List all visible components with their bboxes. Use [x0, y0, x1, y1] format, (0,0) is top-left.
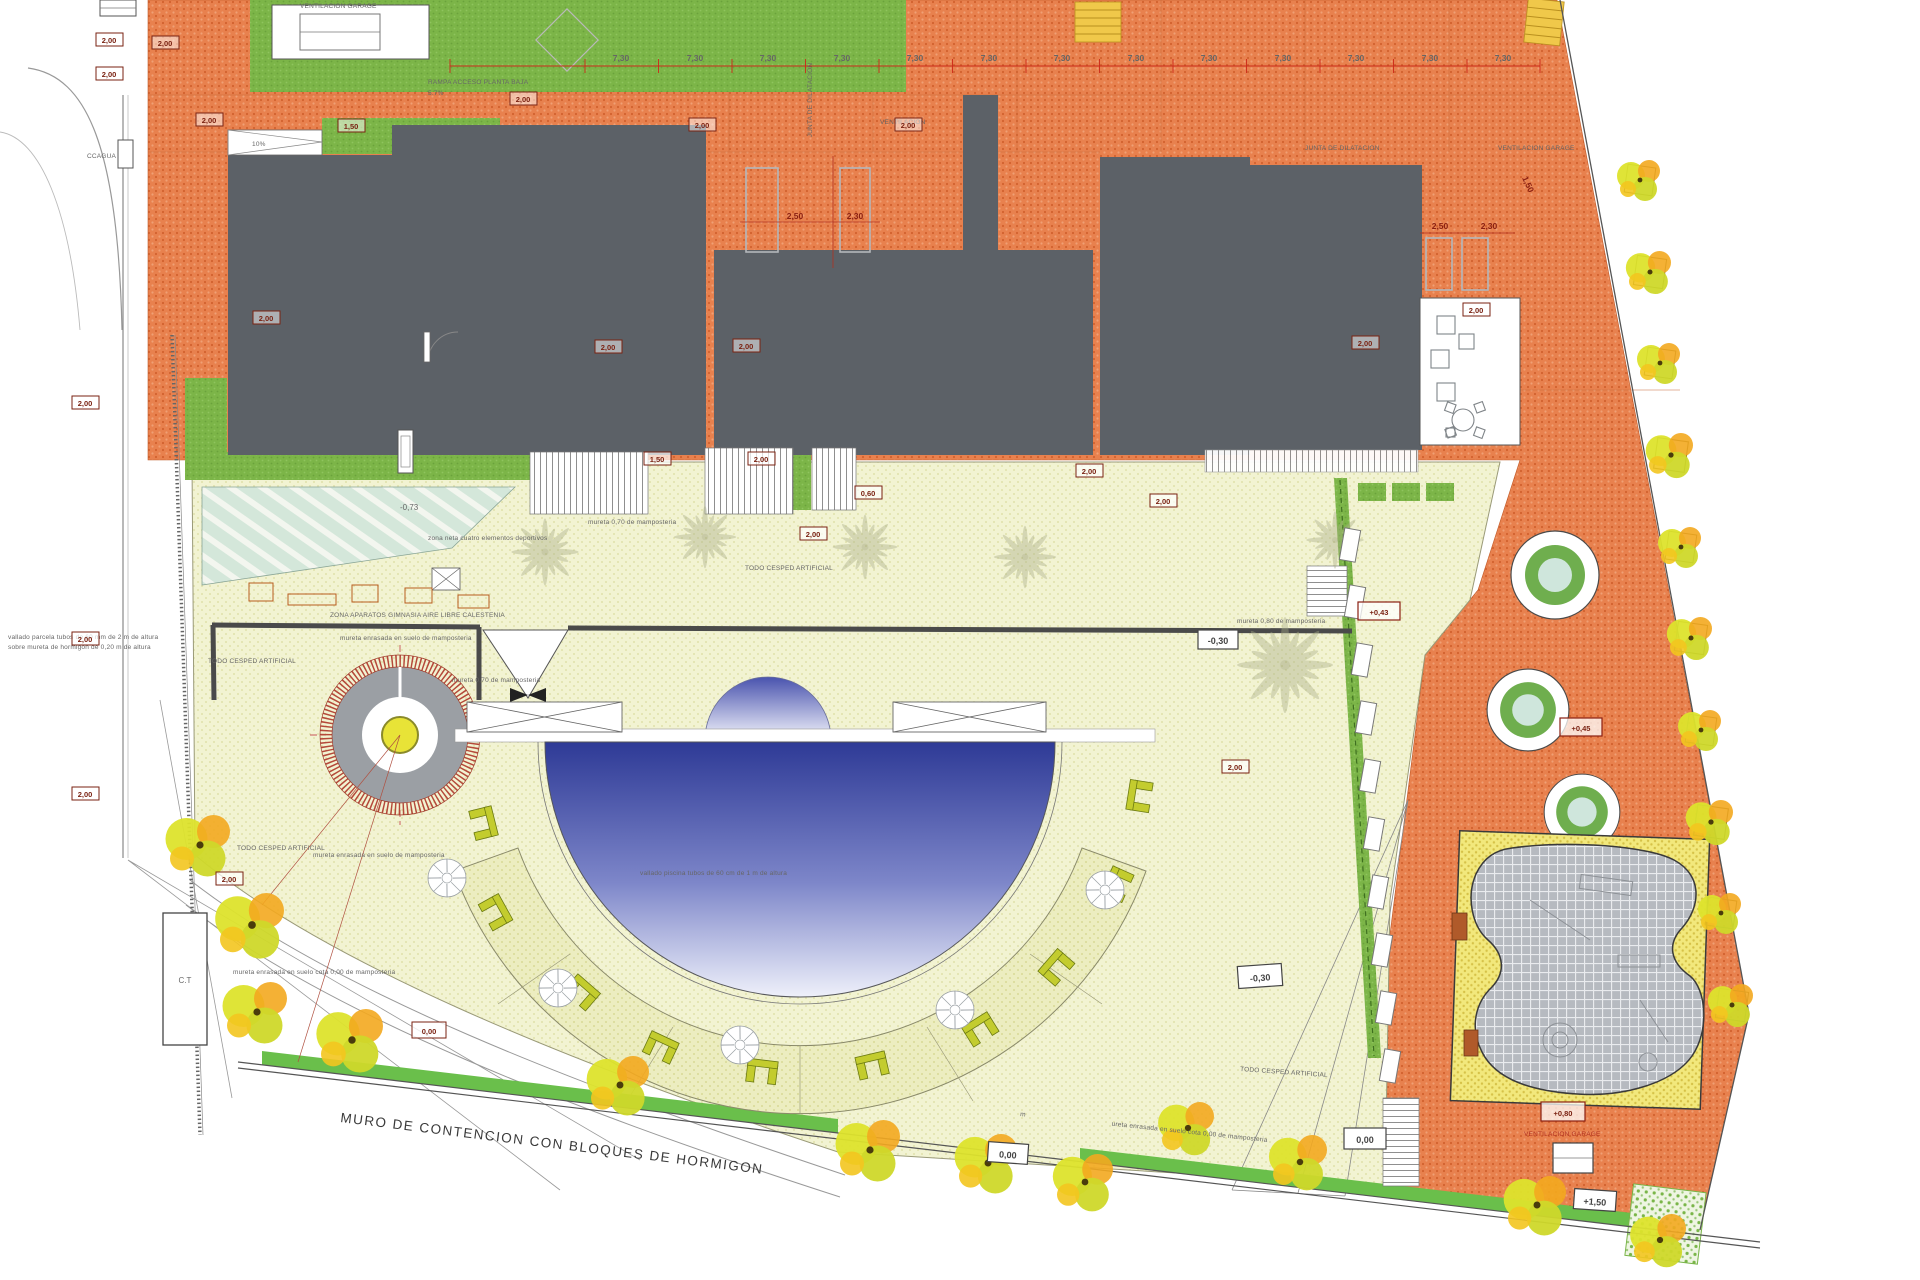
dim-730: 7,30: [687, 53, 704, 63]
zona-aparatos: ZONA APARATOS GIMNASIA AIRE LIBRE CALEST…: [330, 612, 505, 619]
level-zero-b: 0,00: [987, 1142, 1028, 1165]
dim-730: 7,30: [1201, 53, 1218, 63]
slope-10-label: 10%: [252, 141, 266, 148]
svg-text:0,00: 0,00: [422, 1027, 437, 1036]
svg-text:1,50: 1,50: [344, 122, 359, 131]
svg-text:2,00: 2,00: [754, 455, 769, 464]
vent-garage-top: VENTILACION GARAGE: [300, 3, 377, 10]
zona-neta: zona neta cuatro elementos deportivos: [428, 535, 548, 542]
svg-text:2,00: 2,00: [78, 790, 93, 799]
rampa-label: RAMPA ACCESO PLANTA BAJA: [428, 79, 529, 86]
mureta-cota-1: mureta enrasada en suelo cota 0,00 de ma…: [233, 969, 395, 976]
mureta-080: mureta 0,80 de mamposteria: [1237, 618, 1325, 625]
dim-730: 7,30: [613, 53, 630, 63]
building-2: [714, 250, 1093, 455]
svg-text:+0,43: +0,43: [1370, 608, 1389, 617]
mureta-enrasada-b: mureta enrasada en suelo de mamposteria: [313, 852, 445, 859]
svg-text:2,00: 2,00: [78, 399, 93, 408]
patio: [1420, 298, 1520, 445]
dim-730: 7,30: [907, 53, 924, 63]
level-zero-c: 0,00: [412, 1022, 446, 1038]
svg-text:2,00: 2,00: [695, 121, 710, 130]
dim-730: 7,30: [1275, 53, 1292, 63]
dim-250: 2,50: [787, 211, 804, 221]
svg-text:2,00: 2,00: [259, 314, 274, 323]
level-m073: -0,73: [400, 503, 419, 512]
svg-text:+1,50: +1,50: [1583, 1196, 1606, 1208]
building-3a: [1100, 157, 1250, 455]
todo-cesped-3: TODO CESPED ARTIFICIAL: [237, 845, 325, 852]
svg-text:2,00: 2,00: [1082, 467, 1097, 476]
svg-text:2,00: 2,00: [1358, 339, 1373, 348]
svg-text:0,00: 0,00: [999, 1149, 1017, 1160]
dim-230b: 2,30: [1481, 221, 1498, 231]
svg-text:2,00: 2,00: [222, 875, 237, 884]
svg-text:+0,45: +0,45: [1572, 724, 1591, 733]
svg-text:2,00: 2,00: [901, 121, 916, 130]
ccagua-label: CCAGUA: [87, 153, 116, 160]
vent-box-bottom: [1553, 1143, 1593, 1173]
rampa-slope: 5.7%: [428, 90, 444, 97]
level-p043: +0,43: [1358, 602, 1400, 620]
dim-730: 7,30: [1128, 53, 1145, 63]
mureta-070-b: mureta 0,70 de mamposteria: [452, 677, 540, 684]
mureta-enrasada: mureta enrasada en suelo de mamposteria: [340, 635, 472, 642]
level-m030-a: -0,30: [1198, 630, 1238, 649]
dim-730: 7,30: [760, 53, 777, 63]
dim-730: 7,30: [834, 53, 851, 63]
level-p150: +1,50: [1573, 1189, 1616, 1212]
playground: [1450, 831, 1709, 1110]
dim-250b: 2,50: [1432, 221, 1449, 231]
pool-ramp-left: [467, 702, 622, 732]
ct-label: C.T: [179, 976, 192, 985]
level-p045: +0,45: [1560, 718, 1602, 736]
garage-vent-structure: [272, 5, 429, 59]
svg-text:-0,30: -0,30: [1250, 972, 1271, 983]
level-m030-b: -0,30: [1237, 963, 1282, 988]
dim-730: 7,30: [1422, 53, 1439, 63]
building-1: [228, 125, 706, 455]
svg-text:2,00: 2,00: [202, 116, 217, 125]
junta-right: JUNTA DE DILATACION: [1305, 145, 1380, 152]
svg-text:0,60: 0,60: [861, 489, 876, 498]
vent-garage-bottom: VENTILACION GARAGE: [1524, 1131, 1601, 1138]
svg-text:2,00: 2,00: [158, 39, 173, 48]
playground-rubber-surface: [1471, 844, 1704, 1094]
vent-garage-right: VENTILACION GARAGE: [1498, 145, 1575, 152]
dim-730: 7,30: [1348, 53, 1365, 63]
svg-text:-0,30: -0,30: [1208, 636, 1229, 646]
svg-text:1,50: 1,50: [650, 455, 665, 464]
svg-text:2,00: 2,00: [806, 530, 821, 539]
todo-cesped-1: TODO CESPED ARTIFICIAL: [745, 565, 833, 572]
pool-ramp-right: [893, 702, 1046, 732]
svg-text:2,00: 2,00: [601, 343, 616, 352]
ct-box: C.T: [163, 913, 207, 1045]
arqueta-box: [432, 568, 460, 590]
dim-230: 2,30: [847, 211, 864, 221]
building-2-tower: [963, 95, 998, 252]
access-ramp-10: 10%: [228, 130, 322, 155]
svg-text:2,00: 2,00: [78, 635, 93, 644]
mureta-070-a: mureta 0,70 de mamposteria: [588, 519, 676, 526]
dim-730: 7,30: [1495, 53, 1512, 63]
building-3b: [1249, 165, 1422, 450]
level-zero-a: 0,00: [1344, 1128, 1386, 1149]
site-plan-drawing: -0,73 10%: [0, 0, 1920, 1280]
svg-text:+0,80: +0,80: [1554, 1109, 1573, 1118]
level-p080: +0,80: [1541, 1102, 1585, 1121]
dim-730: 7,30: [981, 53, 998, 63]
pergola-strip: [1205, 450, 1418, 472]
svg-text:2,00: 2,00: [102, 70, 117, 79]
svg-text:2,00: 2,00: [102, 36, 117, 45]
svg-text:2,00: 2,00: [739, 342, 754, 351]
svg-text:2,00: 2,00: [516, 95, 531, 104]
junta-vertical: JUNTA DE DILATACION: [807, 63, 814, 138]
vallado-piscina: vallado piscina tubos de 60 cm de 1 m de…: [640, 870, 787, 877]
todo-cesped-2: TODO CESPED ARTIFICIAL: [208, 658, 296, 665]
svg-text:2,00: 2,00: [1156, 497, 1171, 506]
dim-730: 7,30: [1054, 53, 1071, 63]
svg-text:0,00: 0,00: [1356, 1135, 1374, 1145]
svg-text:2,00: 2,00: [1469, 306, 1484, 315]
svg-text:2,00: 2,00: [1228, 763, 1243, 772]
